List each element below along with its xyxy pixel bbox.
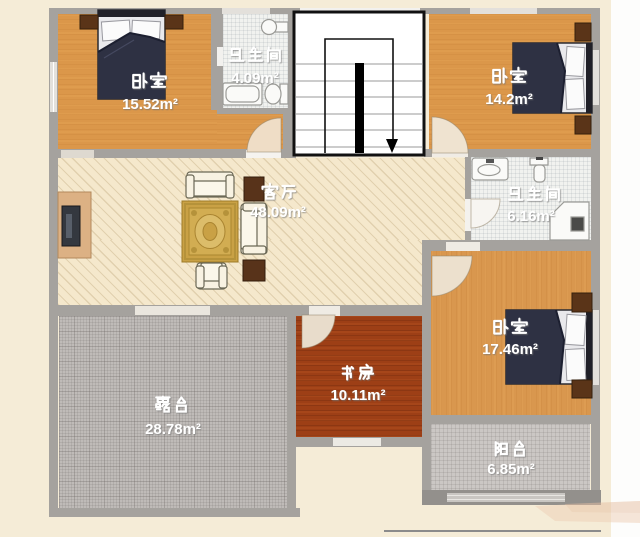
svg-text:4.09m²: 4.09m² [231, 70, 279, 87]
svg-text:15.52m²: 15.52m² [122, 96, 178, 113]
svg-text:6.85m²: 6.85m² [487, 461, 535, 478]
svg-text:48.09m²: 48.09m² [250, 204, 306, 221]
svg-text:10.11m²: 10.11m² [330, 387, 385, 404]
svg-text:14.2m²: 14.2m² [485, 91, 533, 108]
svg-text:6.16m²: 6.16m² [507, 208, 555, 225]
svg-text:17.46m²: 17.46m² [482, 341, 538, 358]
svg-text:28.78m²: 28.78m² [145, 421, 201, 438]
